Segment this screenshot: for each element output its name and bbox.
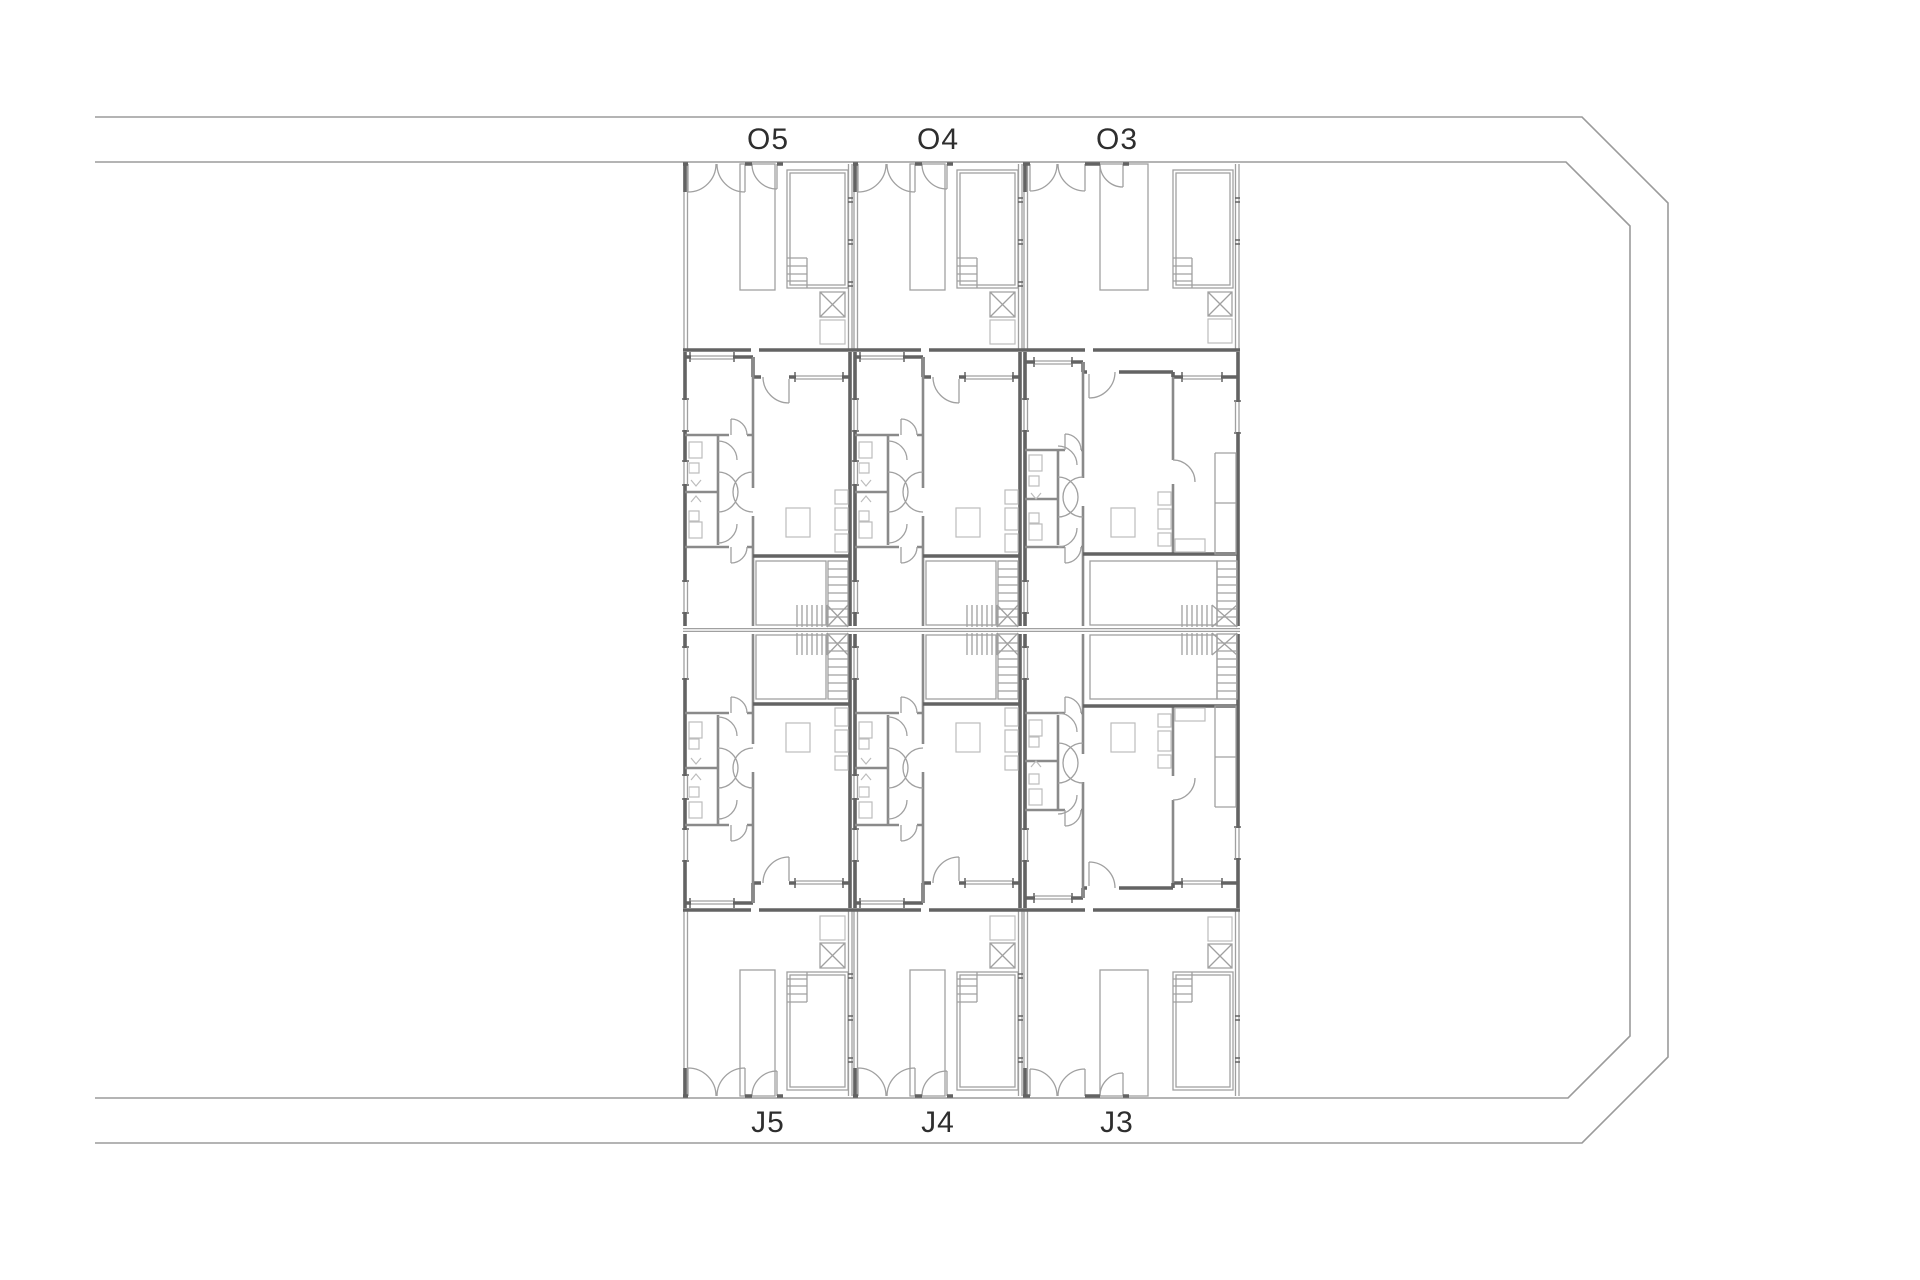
unit-j3-plan (1022, 633, 1241, 1096)
label-unit-j3: J3 (1100, 1106, 1134, 1139)
site-boundary-outer (95, 117, 1668, 1143)
label-unit-o4: O4 (917, 123, 959, 156)
party-line (683, 629, 1240, 632)
label-unit-o3: O3 (1096, 123, 1138, 156)
label-unit-j4: J4 (921, 1106, 955, 1139)
label-unit-o5: O5 (747, 123, 789, 156)
unit-o5-plan (682, 164, 853, 627)
unit-j4-plan (852, 633, 1023, 1096)
unit-o3-plan (1022, 164, 1241, 627)
label-unit-j5: J5 (751, 1106, 785, 1139)
floor-plan-page: O5 O4 O3 J5 J4 J3 (0, 0, 1920, 1280)
floor-plan-canvas: O5 O4 O3 J5 J4 J3 (0, 0, 1920, 1280)
site-boundary-inner (95, 162, 1630, 1098)
unit-j5-plan (682, 633, 853, 1096)
unit-o4-plan (852, 164, 1023, 627)
